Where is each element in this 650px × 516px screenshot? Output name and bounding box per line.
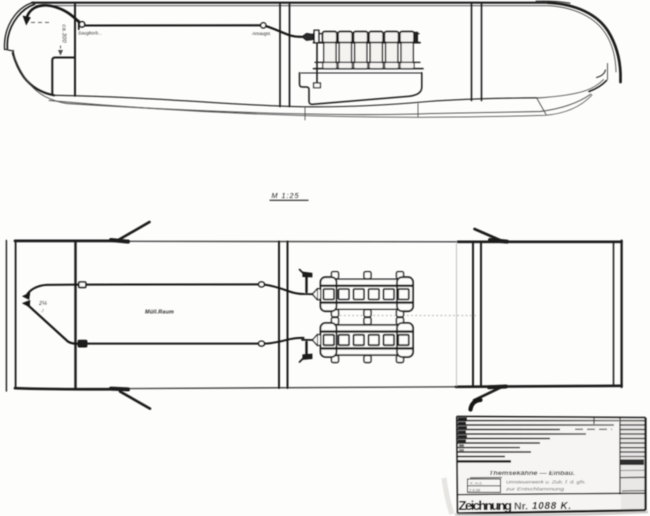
svg-text:ca.300: ca.300	[61, 25, 67, 44]
svg-text:K. m.b.: K. m.b.	[470, 481, 483, 486]
svg-text:Saugkorb...: Saugkorb...	[78, 30, 102, 35]
svg-text:2.6.08: 2.6.08	[468, 487, 481, 492]
svg-text:Zeichnung: Zeichnung	[459, 498, 513, 513]
svg-text:Ansaugst.: Ansaugst.	[251, 31, 271, 36]
svg-text:.!: .!	[41, 308, 44, 313]
svg-text:M 1:25: M 1:25	[272, 191, 300, 200]
svg-text:Umsteuerwerk u. Zub. f. d. gfs: Umsteuerwerk u. Zub. f. d. gfs.	[506, 479, 586, 484]
svg-text:1088 K.: 1088 K.	[532, 501, 572, 512]
svg-text:zur Entschlammung: zur Entschlammung	[505, 486, 565, 491]
svg-text:Themsekähne — Einbau.: Themsekähne — Einbau.	[489, 471, 575, 477]
svg-text:Müll.Raum: Müll.Raum	[145, 310, 174, 316]
svg-text:2¼: 2¼	[38, 301, 47, 307]
svg-text:Nr.: Nr.	[514, 500, 528, 512]
